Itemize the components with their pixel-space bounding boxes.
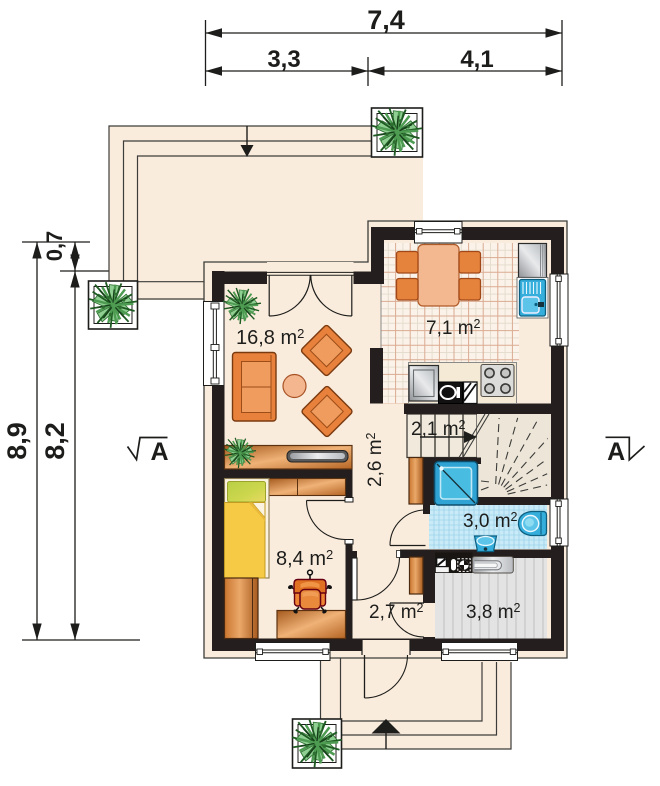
- svg-text:4,1: 4,1: [460, 46, 493, 73]
- svg-text:8,2: 8,2: [40, 422, 70, 460]
- svg-text:A: A: [607, 438, 625, 466]
- svg-text:7,1 m2: 7,1 m2: [426, 317, 481, 339]
- svg-text:A: A: [150, 438, 168, 466]
- svg-text:3,0 m2: 3,0 m2: [463, 510, 518, 532]
- svg-text:2,6 m2: 2,6 m2: [364, 432, 386, 487]
- svg-text:8,4 m2: 8,4 m2: [276, 547, 333, 570]
- svg-text:8,9: 8,9: [2, 422, 32, 460]
- svg-text:2,7 m2: 2,7 m2: [369, 601, 424, 623]
- svg-text:3,3: 3,3: [267, 46, 300, 73]
- svg-text:0,7: 0,7: [42, 231, 67, 262]
- svg-text:3,8 m2: 3,8 m2: [466, 601, 521, 623]
- svg-text:2,1 m2: 2,1 m2: [411, 418, 466, 440]
- svg-text:16,8 m2: 16,8 m2: [236, 326, 304, 349]
- svg-text:7,4: 7,4: [367, 5, 405, 35]
